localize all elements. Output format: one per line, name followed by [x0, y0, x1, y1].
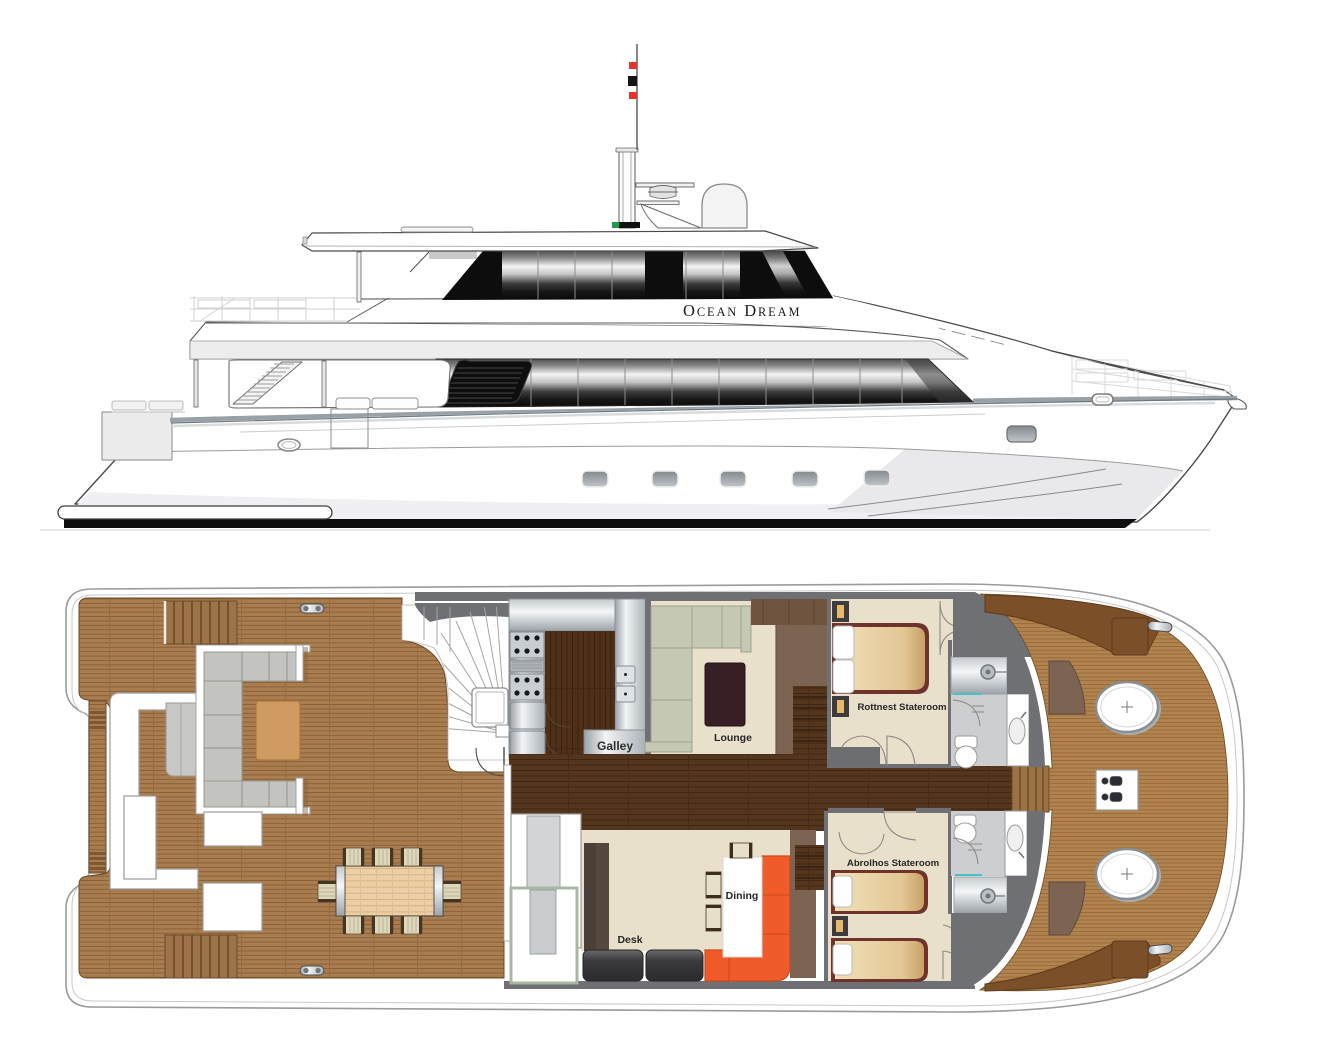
svg-text:Lounge: Lounge [714, 732, 752, 744]
svg-text:Rottnest Stateroom: Rottnest Stateroom [857, 702, 946, 713]
svg-text:Galley: Galley [597, 739, 633, 753]
svg-text:Desk: Desk [617, 934, 642, 946]
svg-text:Abrolhos Stateroom: Abrolhos Stateroom [847, 858, 939, 869]
svg-text:Dining: Dining [726, 890, 759, 902]
